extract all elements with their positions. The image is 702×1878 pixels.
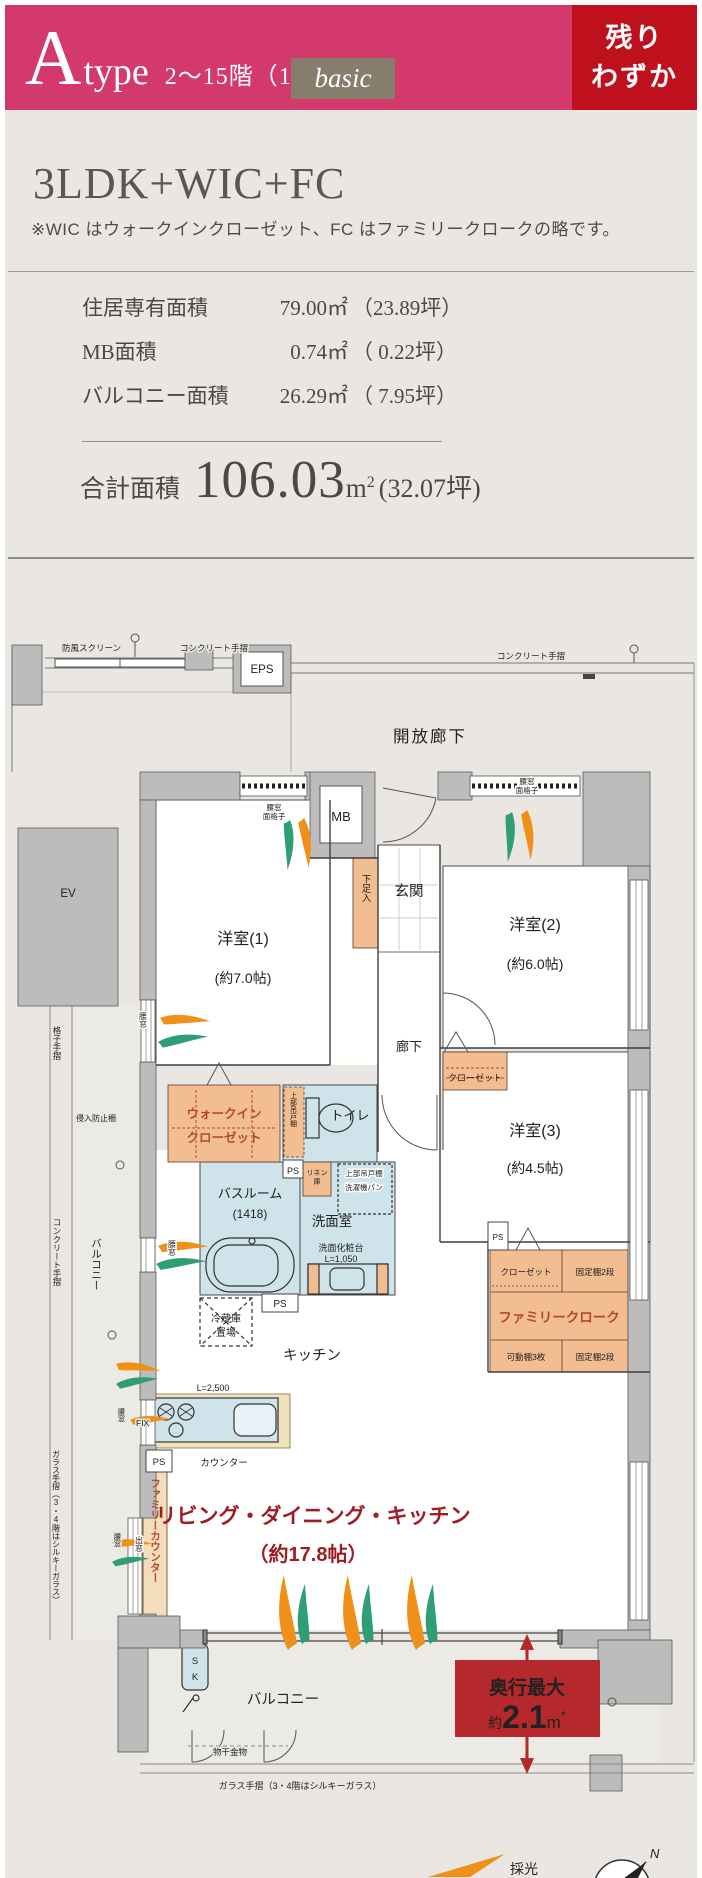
closet-room3	[443, 1052, 507, 1090]
floorplan-flyer: A type 2〜15階（14戸） basic 残り わずか 3LDK+WIC+…	[0, 0, 702, 1878]
fixed-shelf-label: 固定棚2段	[576, 1352, 615, 1362]
linen-label: リネン	[307, 1169, 328, 1177]
kitchen-sink	[234, 1404, 276, 1436]
windbreak-label: 防風スクリーン	[62, 643, 121, 653]
window-label: 腰窓	[139, 1012, 148, 1028]
shoe-box-label: 下足入	[360, 874, 372, 903]
room3-label: 洋室(3)	[509, 1122, 561, 1140]
ps-label: PS	[493, 1233, 504, 1242]
laundry-hook-label: 物干金物	[213, 1747, 248, 1757]
room2-label: 洋室(2)	[509, 916, 561, 934]
depth-badge-label: 奥行最大	[489, 1676, 565, 1699]
bay-window	[128, 1518, 142, 1614]
entrance-door	[383, 788, 436, 842]
vanity-size: L=1,050	[325, 1254, 358, 1264]
movable-shelf-label: 可動棚3枚	[507, 1352, 546, 1362]
overhead-cabinet-label: 上部吊戸棚	[345, 1168, 383, 1178]
eps-label: EPS	[250, 664, 273, 676]
room2-size: (約6.0帖)	[507, 956, 564, 972]
daylight-label: 採光	[510, 1861, 538, 1877]
kitchen-label: キッチン	[283, 1348, 341, 1364]
rail-label: コンクリート手摺	[180, 643, 248, 653]
bay-window-label: 出窓	[135, 1535, 144, 1552]
toilet-label: トイレ	[330, 1108, 369, 1123]
rail-label: コンクリート手摺	[52, 1218, 62, 1287]
ps-label: PS	[153, 1457, 166, 1468]
fridge-label: 置場	[216, 1326, 236, 1339]
genkan-label: 玄関	[395, 883, 424, 900]
open-corridor-label: 開放廊下	[393, 727, 467, 746]
daylight-arrow	[428, 1854, 505, 1877]
hall-label: 廊下	[396, 1039, 422, 1054]
glass-rail-label: ガラス手摺（3・4階はシルキーガラス）	[52, 1450, 61, 1604]
vanity-label: 洗面化粧台	[318, 1242, 363, 1253]
elevator-shaft	[18, 828, 118, 1006]
room3-size: (約4.5帖)	[507, 1160, 564, 1176]
rail-label: コンクリート手摺	[497, 651, 565, 661]
linen-label: 庫	[314, 1177, 321, 1186]
window-label: 腰窓	[267, 802, 282, 812]
washroom-label: 洗面室	[312, 1213, 353, 1229]
ps-label: PS	[287, 1166, 299, 1176]
sk-sink	[182, 1644, 208, 1690]
family-cloak-label: ファミリークローク	[498, 1310, 620, 1325]
room1-size: (約7.0帖)	[215, 970, 272, 986]
fridge-label: 冷蔵庫	[211, 1312, 241, 1325]
fix-window-label: FIX	[136, 1418, 150, 1428]
north-label: N	[650, 1846, 660, 1861]
family-counter-label: ファミリーカウンター	[149, 1478, 161, 1583]
balcony-label: バルコニー	[90, 1238, 102, 1291]
overhead-cabinet-label: 上部吊戸棚	[290, 1091, 298, 1128]
window-label: 腰窓	[114, 1533, 122, 1547]
ps-label: PS	[273, 1299, 287, 1310]
window-label: 腰窓	[168, 1240, 177, 1256]
ldk-size: （約17.8帖）	[249, 1542, 368, 1566]
floorplan-diagram: 奥行最大 約2.1m* N 防風スクリーン コンクリート手摺 EPS コンクリー…	[0, 0, 702, 1878]
washer-pan-label: 洗濯機パン	[345, 1182, 383, 1192]
room1-label: 洋室(1)	[217, 930, 269, 948]
window-label: 面格子	[516, 785, 539, 795]
closet-label: クローゼット	[500, 1267, 551, 1277]
kitchen-length-label: L=2,500	[197, 1383, 230, 1393]
fixed-shelf-label: 固定棚2段	[576, 1267, 615, 1277]
wic-label: クローゼット	[186, 1130, 261, 1145]
closet-label: クローゼット	[448, 1072, 502, 1083]
wic-label: ウォークイン	[186, 1107, 261, 1121]
wic-door-mark	[207, 1063, 231, 1085]
bathroom-size: (1418)	[233, 1207, 268, 1221]
compass: N	[594, 1846, 660, 1878]
mb-label: MB	[331, 809, 351, 824]
window-label: 腰窓	[118, 1408, 126, 1422]
window-label: 腰窓	[520, 776, 535, 786]
lattice-rail-label: 格子手摺	[52, 1025, 62, 1061]
intrusion-guard-label: 侵入防止柵	[76, 1113, 116, 1123]
walk-in-closet	[168, 1085, 280, 1162]
sk-label: K	[192, 1672, 199, 1683]
ldk-label: リビング・ダイニング・キッチン	[156, 1504, 471, 1528]
ev-label: EV	[60, 888, 76, 900]
glass-rail-label: ガラス手摺（3・4階はシルキーガラス）	[219, 1780, 382, 1791]
window-label: 面格子	[263, 811, 286, 821]
bathroom-label: バスルーム	[218, 1186, 283, 1201]
sk-label: S	[192, 1656, 198, 1667]
shoe-box	[353, 858, 378, 948]
balcony-label: バルコニー	[247, 1692, 319, 1708]
counter-label: カウンター	[200, 1458, 248, 1469]
